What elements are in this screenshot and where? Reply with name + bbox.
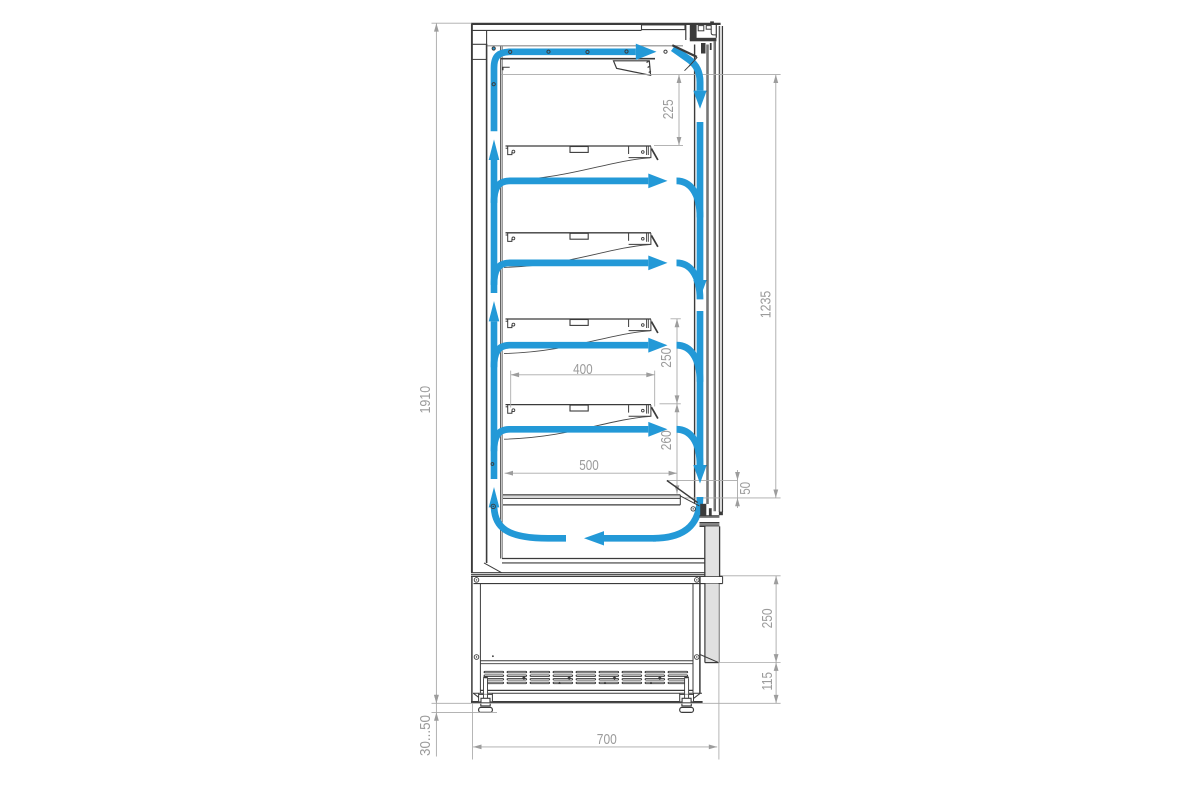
svg-text:250: 250 — [659, 348, 675, 368]
svg-text:50: 50 — [738, 482, 754, 495]
svg-text:500: 500 — [579, 458, 599, 474]
svg-text:700: 700 — [597, 732, 617, 748]
svg-text:400: 400 — [573, 362, 593, 378]
svg-text:1910: 1910 — [418, 386, 434, 414]
svg-text:115: 115 — [760, 672, 776, 691]
svg-text:225: 225 — [661, 99, 677, 119]
svg-text:30...50: 30...50 — [418, 715, 434, 756]
svg-text:250: 250 — [760, 608, 776, 628]
svg-text:1235: 1235 — [758, 291, 774, 319]
svg-text:260: 260 — [659, 430, 675, 450]
